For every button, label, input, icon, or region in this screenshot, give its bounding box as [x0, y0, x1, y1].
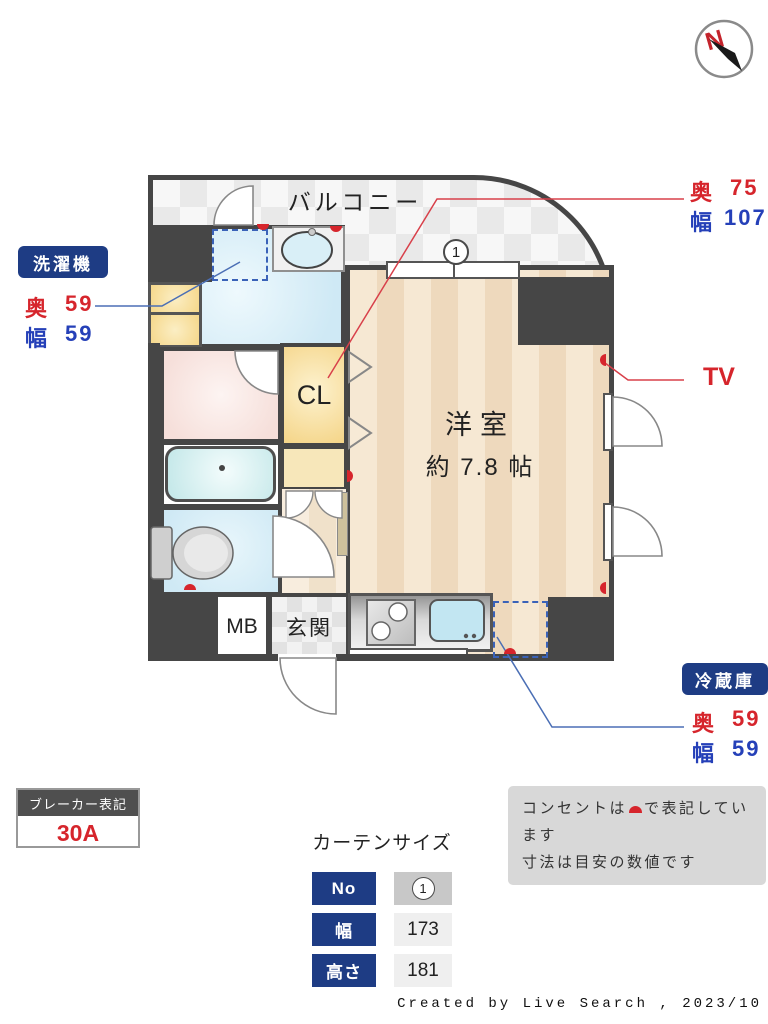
storage-block-1	[148, 282, 202, 315]
outlet-legend-icon	[629, 806, 642, 813]
right-window-swing-2	[613, 507, 662, 556]
sliding-door-pocket	[337, 492, 348, 556]
breaker-value: 30A	[18, 816, 138, 850]
fridge-width: 幅 59	[692, 736, 761, 768]
closet-depth-key: 奥	[690, 175, 714, 207]
washer-space	[212, 229, 268, 281]
fridge-space	[493, 601, 548, 658]
right-window-2	[603, 503, 613, 561]
entrance: 玄関	[268, 593, 350, 660]
floorplan-page: N バルコニー 1 洋室 約 7.8 帖 CL MB 玄関	[0, 0, 768, 1024]
dressing-room	[160, 347, 282, 443]
bathtub	[165, 446, 276, 502]
curtain-no-circled: 1	[412, 877, 435, 900]
closet-width-key: 幅	[690, 205, 714, 237]
window-mullion	[453, 263, 455, 277]
closet-width-value: 107	[724, 205, 767, 237]
compass-icon: N	[693, 18, 755, 80]
wall-block-topleft	[148, 225, 212, 282]
tv-label: TV	[703, 363, 735, 392]
meter-box-label: MB	[226, 615, 258, 639]
stove	[366, 599, 416, 646]
entrance-door-gap	[278, 654, 336, 661]
curtain-row-no-label: No	[312, 872, 376, 905]
right-window-swing-1	[613, 397, 662, 446]
room-size-label: 約 7.8 帖	[380, 447, 580, 482]
wall-left	[148, 343, 160, 596]
closet-depth-value: 75	[730, 175, 758, 207]
fridge-width-value: 59	[732, 736, 760, 768]
right-window-1	[603, 393, 613, 451]
closet-lower	[280, 445, 348, 491]
wall-block-topright	[518, 277, 614, 345]
washer-depth: 奥 59	[25, 291, 94, 323]
closet-depth: 奥 75	[690, 175, 759, 207]
closet: CL	[280, 343, 348, 447]
toilet-room	[160, 506, 282, 596]
breaker-box: ブレーカー表記 30A	[16, 788, 140, 848]
closet-label: CL	[297, 380, 332, 411]
curtain-row-width-value: 173	[394, 913, 452, 946]
closet-width: 幅 107	[690, 205, 767, 237]
fridge-badge: 冷蔵庫	[682, 663, 768, 695]
curtain-title: カーテンサイズ	[312, 828, 452, 855]
fridge-depth: 奥 59	[692, 706, 761, 738]
washer-depth-value: 59	[65, 291, 93, 323]
curtain-row-height-label: 高さ	[312, 954, 376, 987]
washer-width-value: 59	[65, 321, 93, 353]
wall-block-bottomright	[548, 597, 614, 660]
washer-width: 幅 59	[25, 321, 94, 353]
note-line2: 寸法は目安の数値です	[522, 854, 697, 871]
entrance-label: 玄関	[286, 612, 332, 642]
washer-badge: 洗濯機	[18, 246, 108, 278]
curtain-row-no-value: 1	[394, 872, 452, 905]
curtain-row-width-label: 幅	[312, 913, 376, 946]
vanity-counter	[272, 226, 345, 272]
fridge-depth-key: 奥	[692, 706, 716, 738]
fridge-width-key: 幅	[692, 736, 716, 768]
note-line1-pre: コンセントは	[522, 800, 627, 817]
breaker-title: ブレーカー表記	[18, 790, 138, 816]
fridge-depth-value: 59	[732, 706, 760, 738]
curtain-row-height-value: 181	[394, 954, 452, 987]
balcony-label: バルコニー	[255, 183, 455, 217]
outlet-note: コンセントはで表記しています 寸法は目安の数値です	[508, 786, 766, 885]
meter-box: MB	[214, 593, 270, 660]
washer-depth-key: 奥	[25, 291, 49, 323]
entrance-door	[280, 658, 336, 714]
compass: N	[693, 18, 755, 80]
washer-width-key: 幅	[25, 321, 49, 353]
room-label: 洋室	[380, 403, 580, 442]
window-number-badge: 1	[443, 239, 469, 265]
wall-block-bottomleft	[148, 593, 216, 660]
kitchen-sink	[429, 599, 485, 642]
credit: Created by Live Search , 2023/10	[397, 996, 762, 1012]
